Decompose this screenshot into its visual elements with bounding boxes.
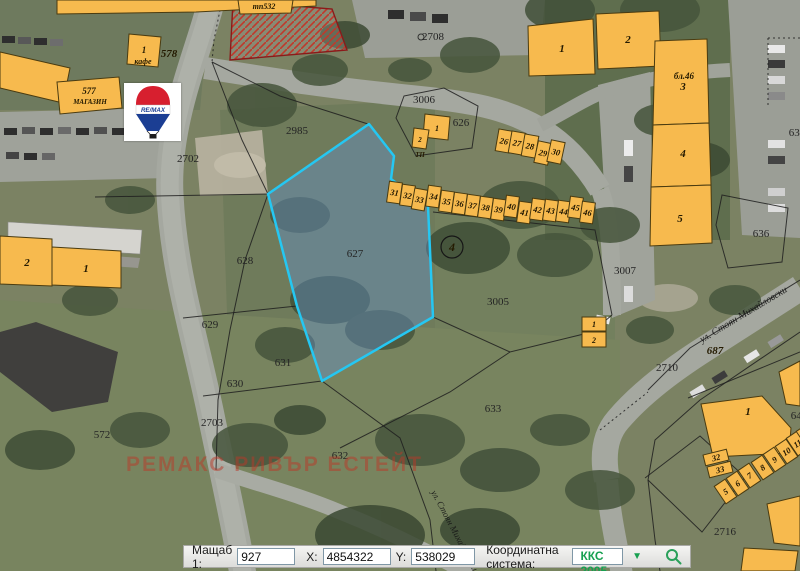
garage-number: 44 (558, 206, 569, 217)
building-number: 2 (624, 34, 631, 46)
parcel-number-label: 642 (791, 410, 800, 422)
parcel-number-label: 2985 (286, 125, 309, 137)
map-canvas[interactable]: 157721123451тп5321212 262728293031323334… (0, 0, 800, 571)
building-number: 1 (559, 43, 565, 55)
building-number: 2 (23, 257, 30, 269)
building-number: 1 (142, 45, 147, 55)
parcel-number-label: 578 (161, 48, 178, 60)
parcel-number-label: 3006 (413, 94, 436, 106)
search-button[interactable] (665, 548, 682, 565)
garage-number: 41 (519, 207, 530, 218)
parcel-number-label: 636 (753, 228, 770, 240)
building-number: 2 (417, 136, 422, 144)
x-label: X: (306, 550, 317, 564)
parcel-number-label: кафе (134, 57, 152, 66)
parcel-number-label: 687 (707, 345, 724, 357)
garage-number: 31 (389, 187, 400, 198)
status-bar: Мащаб 1: X: Y: Координатна система: ККС … (183, 545, 691, 568)
y-label: Y: (396, 550, 407, 564)
parcel-number-label: 633 (485, 403, 502, 415)
agency-watermark: РЕМАКС РИВЪР ЕСТЕЙТ (126, 453, 423, 477)
building-number: 1 (745, 406, 751, 418)
parcel-number-label: 637 (789, 127, 800, 139)
svg-text:RE/MAX: RE/MAX (140, 107, 165, 114)
x-coordinate-input[interactable] (323, 548, 391, 565)
scale-input[interactable] (237, 548, 295, 565)
search-icon (665, 548, 682, 565)
parcel-number-label: ТП (415, 151, 425, 159)
crs-value[interactable]: ККС 2005 (572, 548, 623, 565)
building-number: 5 (677, 213, 683, 225)
building-number: тп532 (253, 2, 276, 11)
crs-dropdown-arrow-icon[interactable]: ▼ (632, 551, 642, 562)
building-number: 1 (592, 320, 596, 329)
parcel-number-label: 2716 (714, 526, 737, 538)
parcel-number-label: 3007 (614, 265, 637, 277)
parcel-number-label: 2702 (177, 153, 199, 165)
garage-number: 34 (428, 191, 439, 202)
parcel-number-label: МАГАЗИН (72, 98, 107, 106)
parcel-number-label: 627 (347, 248, 364, 260)
circle-marker-label: 4 (448, 240, 455, 254)
parcel-number-label: бл.46 (674, 71, 695, 81)
remax-balloon-icon: RE/MAX (133, 85, 173, 139)
building-number: 1 (83, 263, 89, 275)
building-number: 577 (82, 86, 96, 96)
building-number: 1 (435, 124, 439, 133)
building-number: 3 (679, 81, 686, 93)
crs-label: Координатна система: (486, 543, 567, 571)
parcel-number-label: 572 (94, 429, 111, 441)
parcel-number-label: 2708 (422, 31, 445, 43)
parcel-number-label: 631 (275, 357, 292, 369)
parcel-number-label: 2710 (656, 362, 679, 374)
building (741, 548, 798, 571)
scale-label: Мащаб 1: (192, 543, 232, 571)
parcel-number-label: 3005 (487, 296, 510, 308)
parcel-number-label: 629 (202, 319, 219, 331)
remax-logo: RE/MAX (124, 83, 181, 141)
parcel-number-label: 2703 (201, 417, 224, 429)
building-number: 2 (591, 336, 596, 345)
parcel-number-label: 626 (453, 117, 470, 129)
parcel-number-label: 628 (237, 255, 254, 267)
map-application-window: 157721123451тп5321212 262728293031323334… (0, 0, 800, 571)
building-number: 4 (679, 148, 686, 160)
parcel-number-label: 630 (227, 378, 244, 390)
y-coordinate-input[interactable] (411, 548, 475, 565)
